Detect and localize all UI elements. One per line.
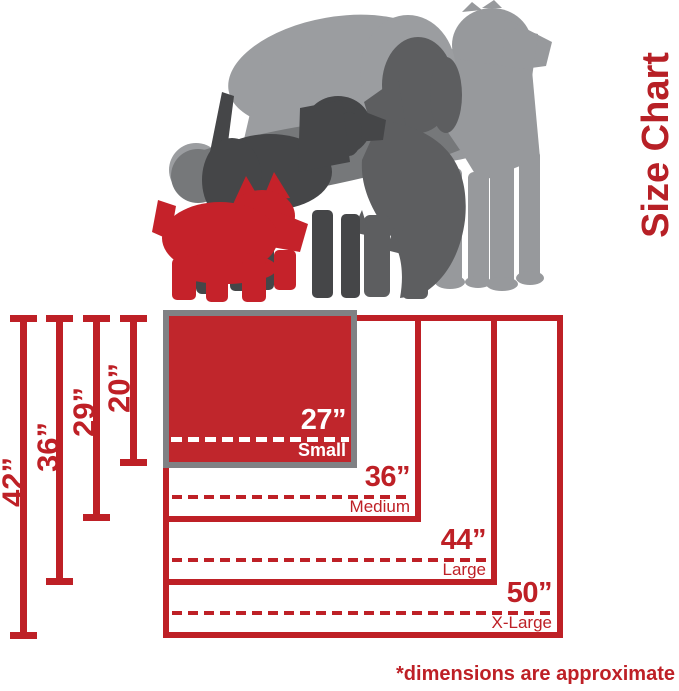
ruler-cap (46, 578, 73, 585)
size-name-small: Small (298, 441, 346, 459)
ruler-cap (83, 514, 110, 521)
ruler-cap (10, 632, 37, 639)
size-name-large: Large (443, 561, 486, 578)
width-label-medium: 36” (365, 463, 410, 492)
width-dash-line-large (172, 558, 488, 562)
height-label-small: 20” (104, 363, 135, 413)
width-label-small: 27” (301, 406, 346, 435)
size-box-small: 27” Small (163, 310, 357, 468)
size-name-xlarge: X-Large (492, 614, 552, 631)
width-label-xlarge: 50” (507, 579, 552, 608)
size-chart-infographic: Size Chart 50” X-Large 44” Large 36” Med… (0, 0, 679, 691)
footnote: *dimensions are approximate (396, 664, 675, 684)
height-label-xlarge: 42” (0, 457, 29, 507)
ruler-cap (120, 459, 147, 466)
height-label-large: 36” (33, 422, 64, 472)
size-name-medium: Medium (350, 498, 410, 515)
page-title: Size Chart (637, 52, 675, 238)
dog-silhouettes-illustration (150, 0, 570, 308)
height-label-medium: 29” (69, 387, 100, 437)
width-label-large: 44” (441, 526, 486, 555)
